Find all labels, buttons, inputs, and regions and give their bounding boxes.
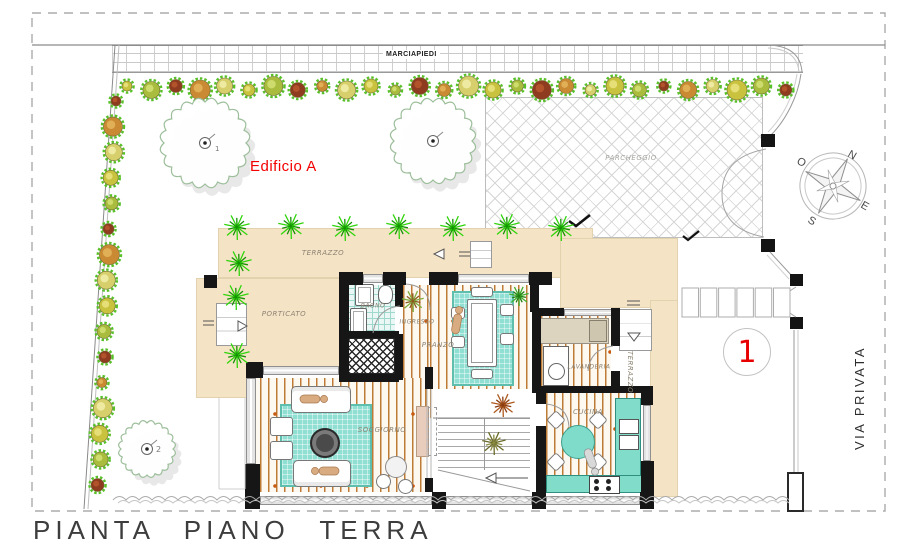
tree-1-number: 1 [215, 145, 219, 153]
compass-south: S [806, 214, 818, 228]
burner [606, 486, 611, 491]
burner [606, 479, 611, 484]
entry-steps-west [216, 303, 247, 346]
street-label: VIA PRIVATA [852, 300, 867, 450]
tv-cabinet-door [428, 407, 437, 456]
porch-column [204, 275, 217, 288]
sofa [293, 460, 351, 487]
window [363, 274, 383, 283]
window [246, 378, 256, 464]
dining-chair [471, 287, 493, 297]
dining-chair [471, 369, 493, 379]
wall-pier [245, 464, 260, 493]
kitchen-sink [619, 419, 639, 434]
side-table [385, 456, 407, 478]
wall-pier [432, 492, 446, 509]
stove [589, 476, 620, 494]
dining-chair [500, 333, 514, 345]
armchair [270, 417, 293, 436]
kitchen-sink-2 [619, 435, 639, 450]
tree-2-number: 2 [156, 445, 161, 454]
kitchen-table [561, 425, 595, 459]
floor-plan-canvas: N E S O MARCIAPIEDI Edificio A PARCHEGGI… [0, 0, 900, 551]
wall [536, 426, 546, 492]
staircase-divider [484, 418, 485, 470]
dining-chair [451, 307, 465, 319]
tub-chair [376, 474, 391, 489]
sofa [291, 386, 351, 413]
wall [345, 331, 399, 338]
wall [532, 308, 564, 316]
laundry-sink [589, 320, 607, 342]
room-label-terrazzo-east: TERRAZZO [626, 351, 634, 393]
compass-rose [788, 141, 877, 230]
room-label-ingresso: INGRESSO [400, 319, 435, 326]
wall-pier [532, 492, 546, 509]
room-label-soggiorno: SOGGIORNO [358, 426, 407, 434]
dining-table [467, 299, 497, 367]
room-label-pranzo: PRANZO [422, 341, 454, 349]
burner [594, 486, 599, 491]
compass-north: N [846, 148, 859, 162]
wall [611, 308, 620, 346]
wall [339, 272, 363, 285]
wall-pier [640, 492, 654, 509]
room-label-porticato: PORTICATO [262, 310, 306, 318]
parking-area [485, 97, 763, 238]
tub-chair [398, 479, 413, 494]
wall [429, 272, 458, 285]
window [643, 405, 651, 461]
terrace-east [650, 300, 678, 497]
terrace-northeast [560, 238, 678, 308]
coffee-table [310, 428, 340, 458]
porch-west [196, 367, 250, 398]
wall-pier [641, 386, 653, 405]
wall [536, 393, 546, 404]
dining-chair [500, 304, 514, 316]
window [260, 496, 432, 505]
window [564, 309, 613, 316]
wall [395, 285, 403, 307]
sidewalk [112, 45, 803, 73]
window [446, 496, 532, 505]
toilet [378, 285, 393, 304]
wall [425, 367, 433, 389]
wall [532, 310, 541, 388]
washer-drum [548, 363, 565, 380]
wall [532, 386, 653, 393]
wall-pier [245, 492, 260, 509]
wall [339, 374, 399, 382]
wall [383, 272, 406, 285]
wall [529, 272, 552, 285]
room-label-lavanderia: LAVANDERIA [568, 364, 611, 371]
window [546, 496, 640, 505]
compass-east: E [859, 199, 871, 213]
wardrobe [348, 338, 395, 374]
armchair [270, 441, 293, 460]
wall [425, 478, 433, 492]
room-label-cucina: CUCINA [573, 408, 603, 416]
drawing-title: PIANTA PIANO TERRA [33, 515, 433, 546]
sidewalk-label: MARCIAPIEDI [383, 50, 440, 59]
wall-pier [246, 362, 263, 378]
window [458, 274, 529, 283]
entry-steps-east [619, 309, 652, 351]
room-label-bagno: BAGNO [361, 303, 386, 310]
wall-pier [641, 461, 654, 492]
compass-west: O [795, 155, 809, 170]
burner [594, 479, 599, 484]
room-label-terrazzo: TERRAZZO [302, 249, 344, 257]
window [263, 366, 339, 375]
terrace-north [218, 228, 593, 278]
unit-number: 1 [737, 335, 756, 370]
parking-label: PARCHEGGIO [605, 154, 657, 162]
building-label: Edificio A [250, 158, 317, 175]
unit-number-badge: 1 [723, 328, 771, 376]
entry-steps-north [470, 241, 492, 268]
